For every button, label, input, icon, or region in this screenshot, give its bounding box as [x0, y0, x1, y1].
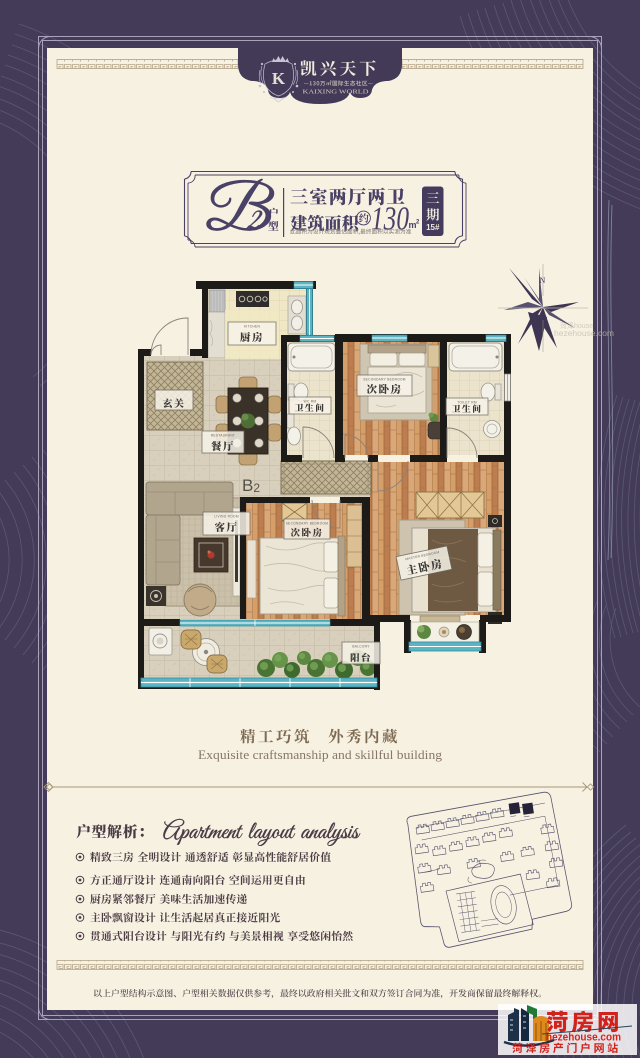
svg-text:hezehouse.com: hezehouse.com: [546, 1032, 621, 1044]
svg-text:KAIXING WORLD: KAIXING WORLD: [303, 88, 370, 95]
svg-text:SECONDARY BEDROOM: SECONDARY BEDROOM: [363, 378, 406, 382]
svg-text:WC RM: WC RM: [304, 400, 317, 404]
svg-text:LIVING ROOM: LIVING ROOM: [214, 515, 239, 519]
svg-text:KITCHEN: KITCHEN: [244, 325, 260, 329]
svg-text:N: N: [540, 276, 546, 285]
svg-text:Exquisite craftsmanship and sk: Exquisite craftsmanship and skillful bui…: [198, 747, 443, 762]
svg-text:BALCONY: BALCONY: [352, 645, 370, 649]
svg-text:RESTAURANT: RESTAURANT: [211, 434, 235, 438]
svg-text:15#: 15#: [426, 223, 440, 232]
svg-text:SECONDARY BEDROOM: SECONDARY BEDROOM: [286, 522, 329, 526]
svg-text:K: K: [272, 69, 286, 88]
svg-text:TOILET RM: TOILET RM: [457, 401, 477, 405]
